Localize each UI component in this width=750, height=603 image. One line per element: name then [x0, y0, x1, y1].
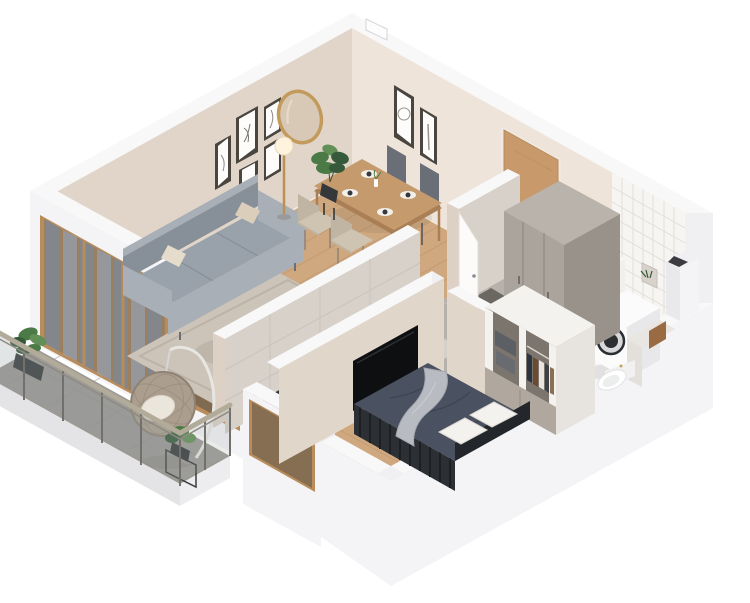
door-handle [472, 274, 476, 278]
plate [367, 172, 372, 177]
flush-button [620, 365, 623, 368]
clothing-item [550, 367, 554, 395]
plate [406, 193, 411, 198]
clothing-item [545, 363, 549, 393]
apartment-isometric-render [0, 0, 750, 603]
clothing-item [539, 360, 544, 390]
lamp-base [277, 214, 291, 220]
leaf [329, 163, 345, 173]
duct-face [666, 262, 680, 321]
apartment-render-stage: 3D isometric cutaway render of a one-bed… [0, 0, 750, 603]
clothing-item [527, 353, 532, 383]
plate [383, 210, 388, 215]
clothing-item [533, 357, 538, 387]
vase [374, 179, 378, 187]
plate [348, 191, 353, 196]
duct-face [680, 258, 699, 321]
lamp-globe [275, 137, 293, 155]
duct-column [666, 251, 699, 321]
print-line [428, 124, 429, 150]
